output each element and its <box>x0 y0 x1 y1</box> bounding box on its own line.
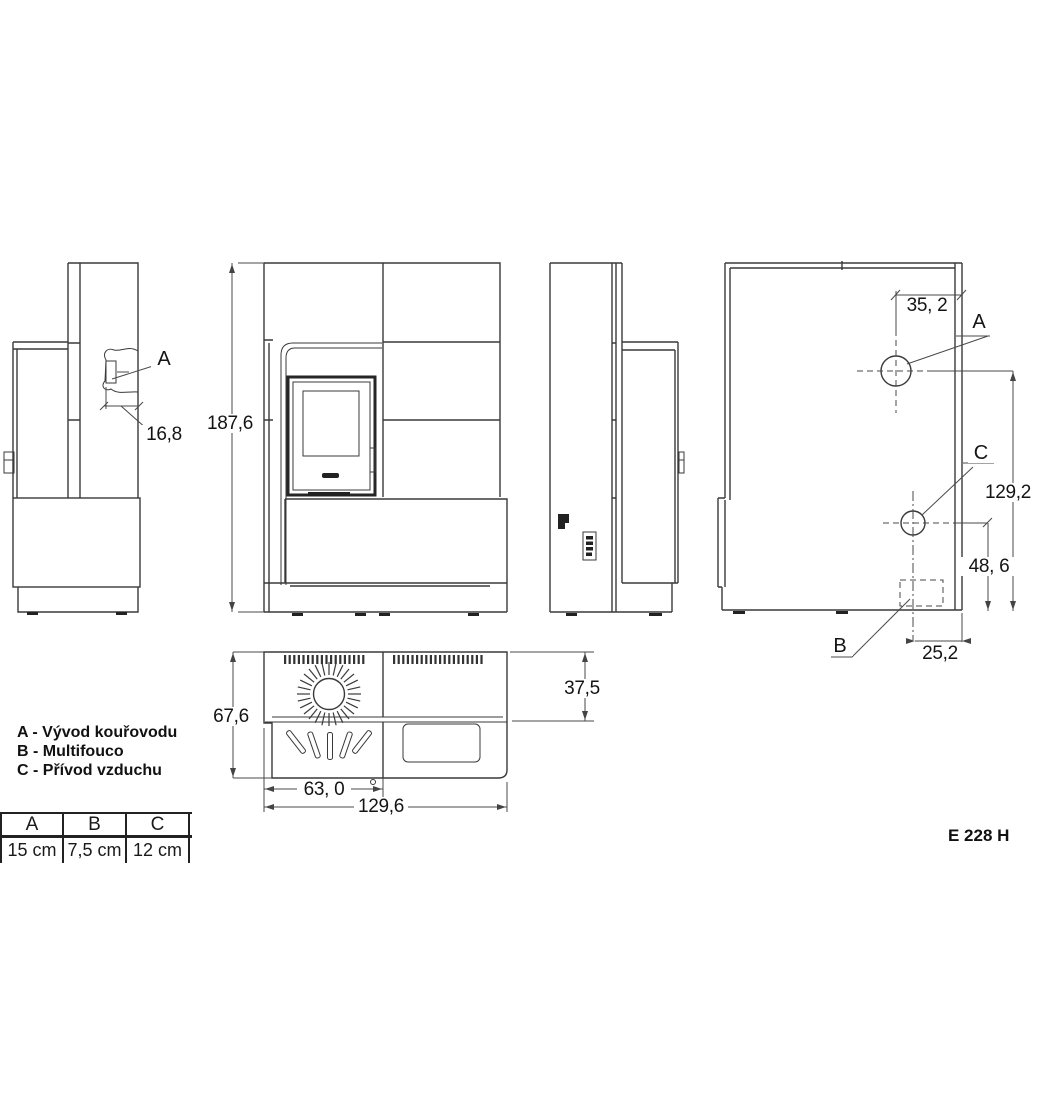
table-value-c: 12 cm <box>127 838 190 863</box>
product-code-label: E 228 H <box>948 826 1009 846</box>
flue-collar <box>314 679 345 710</box>
side-view-right <box>550 263 684 616</box>
callout-a-rear: A <box>966 312 992 332</box>
dim-top-total-width: 129,6 <box>354 797 408 816</box>
legend-item-b: B - Multifouco <box>17 742 177 761</box>
dim-rear-a-height: 129,2 <box>981 483 1035 502</box>
legend: A - Vývod kouřovodu B - Multifouco C - P… <box>17 723 177 780</box>
dim-top-rear-depth: 37,5 <box>555 679 609 698</box>
drawing-linework <box>0 0 1040 1120</box>
table-header-b: B <box>64 814 127 835</box>
table-header-c: C <box>127 814 190 835</box>
callout-b-rear: B <box>827 636 853 656</box>
top-view <box>230 652 594 812</box>
dim-rear-c-height: 48, 6 <box>960 557 1018 576</box>
dim-side-outlet-depth: 16,8 <box>140 425 188 444</box>
callout-a-side: A <box>151 349 177 369</box>
dim-top-depth: 67,6 <box>204 707 258 726</box>
fan-vent-slots <box>286 730 373 760</box>
spec-table-header-row: A B C <box>2 814 192 838</box>
spec-table-value-row: 15 cm 7,5 cm 12 cm <box>2 838 192 863</box>
callout-c-rear: C <box>968 443 994 463</box>
legend-item-a: A - Vývod kouřovodu <box>17 723 177 742</box>
table-value-b: 7,5 cm <box>64 838 127 863</box>
door-handle <box>322 473 339 478</box>
dim-top-left-width: 63, 0 <box>297 780 351 799</box>
table-header-a: A <box>2 814 64 835</box>
dim-rear-a-offset: 35, 2 <box>900 296 954 315</box>
flue-sunburst-rays <box>297 662 361 726</box>
side-view-left <box>4 263 153 615</box>
technical-drawing-page: A 16,8 187,6 A 35, 2 C 129,2 48, 6 B 25,… <box>0 0 1040 1120</box>
legend-item-c: C - Přívod vzduchu <box>17 761 177 780</box>
dim-rear-b-offset: 25,2 <box>915 644 965 663</box>
front-view <box>229 263 507 616</box>
spec-table: A B C 15 cm 7,5 cm 12 cm <box>0 812 192 863</box>
dim-front-height: 187,6 <box>203 414 257 433</box>
table-value-a: 15 cm <box>2 838 64 863</box>
